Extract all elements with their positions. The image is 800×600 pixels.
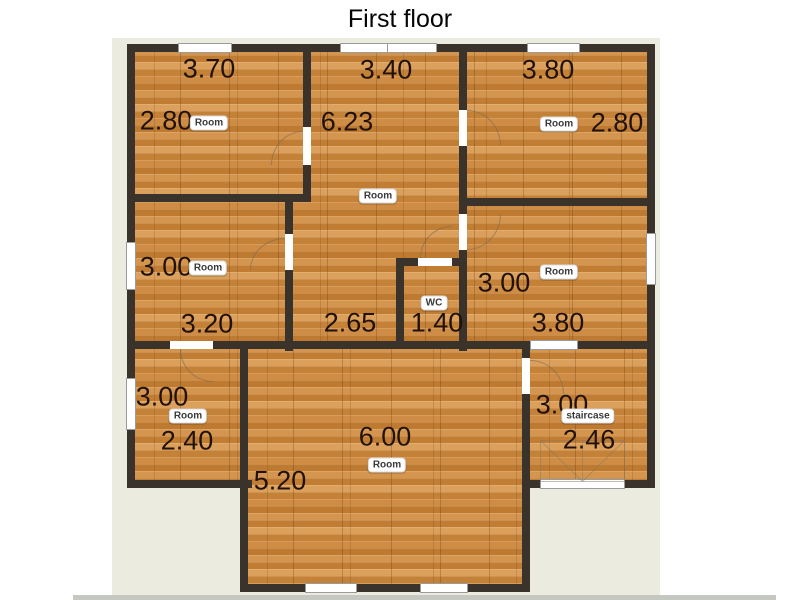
window-top-center-a xyxy=(340,43,388,53)
dim-label: 2.46 xyxy=(563,425,616,456)
room-badge: Room xyxy=(359,189,397,204)
dim-label: 3.00 xyxy=(140,252,193,283)
wall-living-bottom xyxy=(240,584,530,592)
room-badge: Room xyxy=(540,265,578,280)
dim-label: 2.65 xyxy=(324,308,377,339)
window-top-center-b xyxy=(387,43,437,53)
window-bottom-living-a xyxy=(305,583,357,593)
dim-label: 6.23 xyxy=(321,107,374,138)
window-bottom-living-b xyxy=(420,583,468,593)
bottom-edge-strip xyxy=(73,595,776,600)
dim-label: 3.80 xyxy=(522,55,575,86)
dim-label: 3.40 xyxy=(360,55,413,86)
door-opening-staircase xyxy=(522,358,530,394)
wall-wc-left xyxy=(396,258,404,349)
floor-plan-canvas: First floor xyxy=(0,0,800,600)
wall-v-middleleft xyxy=(285,194,293,351)
door-opening-topright xyxy=(459,110,467,146)
wall-v-topleft xyxy=(303,44,311,202)
window-staircase-top xyxy=(530,340,578,350)
door-opening-topleft xyxy=(303,127,311,165)
window-left-bottom xyxy=(126,378,136,430)
window-left-middle xyxy=(126,242,136,290)
dim-label: 3.80 xyxy=(532,308,585,339)
room-badge-staircase: staircase xyxy=(561,409,614,424)
wall-topright-bottom xyxy=(459,198,655,206)
window-right-middle xyxy=(646,233,656,285)
dim-label: 2.80 xyxy=(140,106,193,137)
room-badge: Room xyxy=(540,117,578,132)
room-badge-wc: WC xyxy=(421,296,448,311)
dim-label: 3.70 xyxy=(183,54,236,85)
door-opening-middleright xyxy=(459,214,467,250)
wall-bottom-left-wing xyxy=(127,480,252,488)
dim-label: 2.80 xyxy=(591,108,644,139)
room-badge: Room xyxy=(169,409,207,424)
dim-label: 3.20 xyxy=(181,309,234,340)
window-top-left xyxy=(178,43,232,53)
door-opening-bottomleft xyxy=(170,341,213,349)
room-badge: Room xyxy=(189,261,227,276)
dim-label: 2.40 xyxy=(161,426,214,457)
dim-label: 1.40 xyxy=(411,308,464,339)
dim-label: 3.00 xyxy=(478,268,531,299)
wall-topleft-bottom xyxy=(127,194,311,202)
room-badge: Room xyxy=(368,458,406,473)
door-opening-wc xyxy=(418,258,452,266)
window-top-right xyxy=(527,43,580,53)
wall-v-central-right xyxy=(459,44,467,351)
wall-living-left xyxy=(240,343,248,592)
page-title: First floor xyxy=(0,5,800,34)
room-badge: Room xyxy=(190,116,228,131)
dim-label: 5.20 xyxy=(254,466,307,497)
door-opening-middleleft xyxy=(285,234,293,270)
dim-label: 6.00 xyxy=(359,422,412,453)
